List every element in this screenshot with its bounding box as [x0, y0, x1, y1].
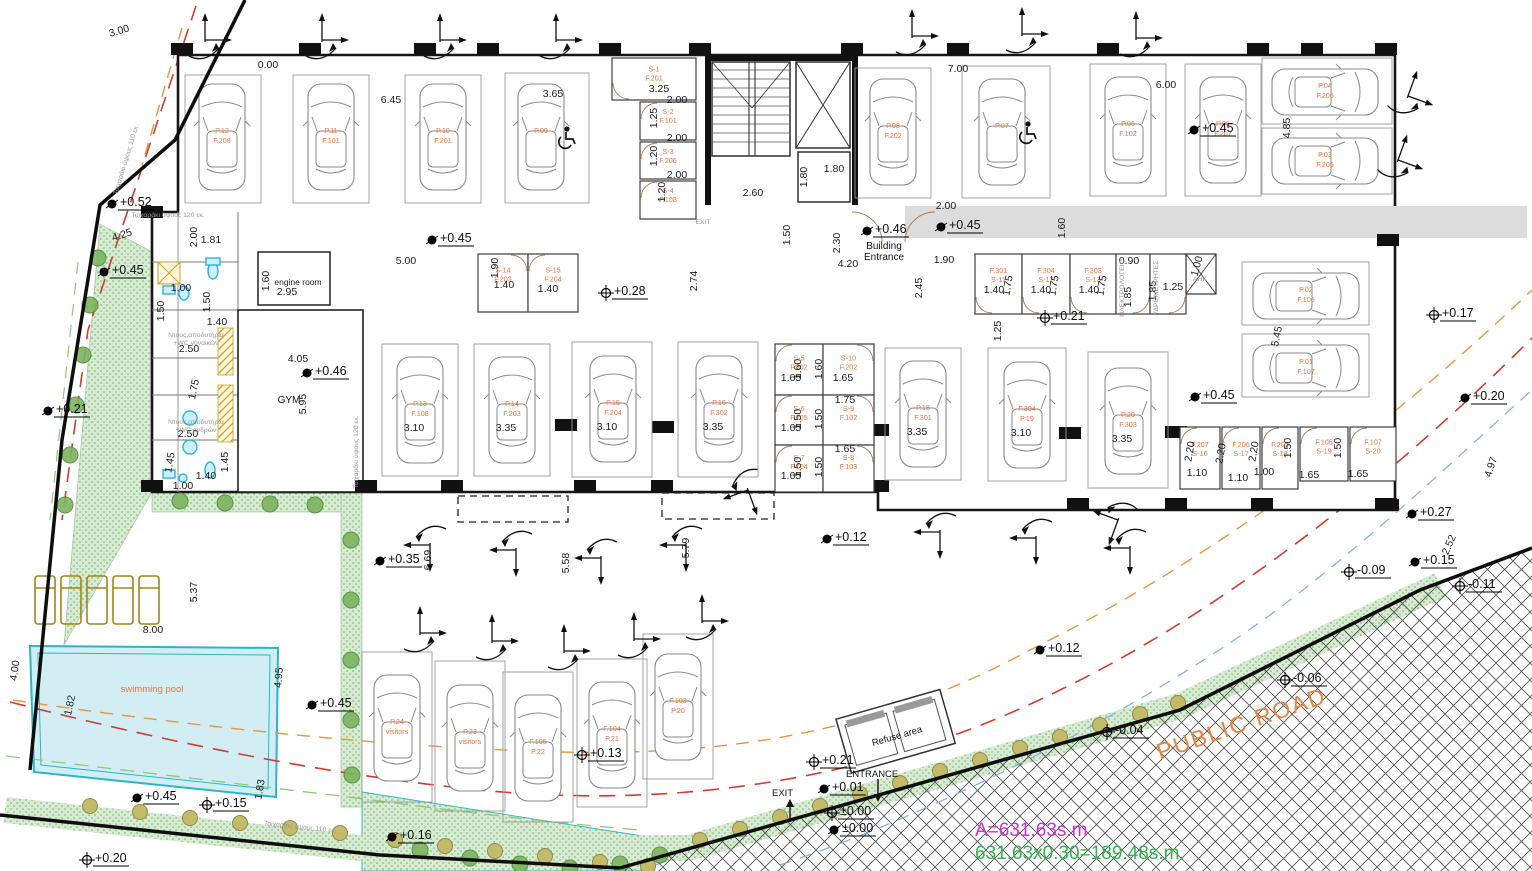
floor-plan-canvas: S-1F.201S-2F.101S-3F.206S-4F.108S-14F.20… — [0, 0, 1532, 871]
dimension-label: 6.45 — [381, 94, 402, 106]
storage-room: S-4F.108 — [640, 181, 696, 219]
elevation-marker: +0.15 — [1409, 553, 1457, 568]
bush-icon — [83, 799, 98, 814]
gym-label: GYM — [278, 395, 301, 406]
dimension-label: 0.00 — [258, 59, 279, 71]
direction-arrow-icon — [476, 614, 519, 660]
tree-icon — [307, 497, 323, 513]
direction-arrow-icon — [1103, 529, 1146, 575]
site-plan-drawing: S-1F.201S-2F.101S-3F.206S-4F.108S-14F.20… — [0, 0, 1532, 871]
parking-spot-id: P.12 — [215, 126, 229, 135]
parking-spot-id: P.06 — [1121, 119, 1135, 128]
wall-column — [651, 480, 673, 492]
elevation-value: +0.52 — [120, 195, 152, 209]
dimension-label: 1.81 — [201, 234, 222, 246]
dimension-label: 1.50 — [792, 409, 804, 430]
direction-arrow-icon — [1120, 11, 1163, 57]
tree-icon — [343, 592, 359, 608]
dimension-label: 2.00 — [667, 94, 688, 106]
parking-spot-flat: P.21 — [605, 734, 619, 743]
wall-column — [141, 480, 163, 492]
note-label: ΗΛΕΚΤΡΟΛΟΓΕΙΟ — [1119, 259, 1126, 317]
bush-icon — [133, 805, 148, 820]
wall-column — [599, 43, 621, 55]
dimension-label: 1.25 — [648, 108, 660, 129]
dimension-label: 6.69 — [422, 550, 434, 571]
dimension-label: 1.65 — [835, 443, 856, 455]
parking-spot-id: P.15 — [606, 398, 620, 407]
wall-column — [689, 43, 711, 55]
stall-width-dim: 3.10 — [1011, 427, 1032, 439]
setback-green-left — [50, 262, 78, 520]
tree-icon — [172, 493, 188, 509]
wall-column — [652, 421, 674, 433]
dimension-label: 1.90 — [934, 254, 955, 266]
room-id: S-3 — [662, 147, 673, 156]
dimension-label: 1.50 — [1282, 438, 1294, 459]
direction-arrow-icon — [548, 624, 591, 670]
dimension-label: 1.65 — [1348, 468, 1369, 480]
room-flat: F.201 — [645, 73, 663, 82]
elevation-value: +0.45 — [1202, 121, 1234, 135]
dimension-label: 6.00 — [1156, 79, 1177, 91]
dimension-label: 1.40 — [538, 283, 559, 295]
dimension-label: 2.00 — [667, 132, 688, 144]
elevation-value: +0.21 — [822, 753, 854, 767]
elevation-marker: +0.20 — [79, 851, 129, 868]
elevation-value: +0.21 — [56, 402, 88, 416]
parking-spot-flat: F.108 — [411, 409, 429, 418]
wall-column — [1375, 43, 1397, 55]
elevation-value: -0.11 — [1468, 577, 1496, 591]
dimension-label: 1.50 — [1332, 438, 1344, 459]
stall-width-dim: 3.10 — [404, 422, 425, 434]
elevation-marker: +0.27 — [1406, 505, 1454, 520]
dimension-label: 5.00 — [396, 255, 417, 267]
dimension-label: 7.00 — [948, 63, 969, 75]
parking-spot-flat: F.107 — [1297, 367, 1315, 376]
parking-spot-flat: F.302 — [710, 408, 728, 417]
elevation-value: +0.12 — [1048, 641, 1080, 655]
dimension-label: 1.50 — [813, 409, 825, 430]
elevation-marker: +0.21 — [806, 753, 856, 770]
wall-column — [414, 43, 436, 55]
parking-spot-flat: P.20 — [671, 706, 685, 715]
wall-column — [555, 419, 577, 431]
wall-column — [441, 480, 463, 492]
elevation-value: -0.09 — [1357, 563, 1386, 577]
bush-icon — [538, 849, 553, 864]
wall-column — [1165, 498, 1187, 510]
dimension-label: 2.45 — [913, 278, 925, 299]
parking-spot-flat: F.101 — [322, 136, 340, 145]
tree-icon — [57, 497, 73, 513]
wall-column — [1097, 43, 1119, 55]
elevation-value: +0.45 — [145, 789, 177, 803]
dimension-label: 1.40 — [494, 279, 515, 291]
direction-arrow-icon — [574, 539, 617, 585]
dimension-label: 2.95 — [277, 286, 298, 298]
parking-spot-id: P.18 — [916, 403, 930, 412]
dimension-label: 3.00 — [108, 22, 131, 39]
room-id: F.304 — [1037, 266, 1055, 275]
bush-icon — [233, 816, 248, 831]
dimension-label: 1.40 — [196, 470, 217, 482]
dimension-label: 1.50 — [792, 457, 804, 478]
dimension-label: 1.10 — [1228, 472, 1249, 484]
dimension-label: 1.50 — [813, 457, 825, 478]
elevation-marker: -0.09 — [1341, 563, 1391, 580]
room-flat: F.206 — [659, 156, 677, 165]
parking-spot-id: P.09 — [534, 126, 548, 135]
tree-icon — [62, 447, 78, 463]
wc-women-label-1: Ντους,αποδυτήρια — [168, 332, 224, 339]
dimension-label: 1.80 — [798, 167, 810, 188]
dimension-label: 4.95 — [272, 667, 286, 689]
elevation-marker: +0.12 — [821, 530, 869, 545]
room-flat: F.101 — [659, 116, 677, 125]
elevation-value: +0.17 — [1442, 306, 1474, 320]
elevation-marker: +0.12 — [1034, 641, 1082, 656]
stall-width-dim: 3.10 — [597, 421, 618, 433]
elevation-value: +0.28 — [614, 284, 646, 298]
parking-spot-flat: F.201 — [434, 136, 452, 145]
parking-stall: F.105P.22 — [503, 672, 573, 822]
parking-spot-flat: P.22 — [531, 747, 545, 756]
dimension-label: 1.90 — [489, 258, 501, 279]
hatched-duct-2 — [218, 385, 233, 442]
room-flat: F.102 — [840, 413, 858, 422]
tree-icon — [217, 495, 233, 511]
dimension-label: 4.05 — [288, 353, 309, 365]
room-id: F.301 — [990, 266, 1008, 275]
room-id: F.303 — [1084, 266, 1102, 275]
note-label: ΥΔΡΟΜΕΤΡΗΤΕΣ — [1153, 260, 1160, 315]
direction-arrow-icon — [404, 606, 447, 652]
parking-spot-id: P.14 — [505, 399, 519, 408]
tree-icon — [343, 712, 359, 728]
wall-column — [1067, 498, 1089, 510]
dimension-label: 1.10 — [1187, 467, 1208, 479]
direction-arrow-icon — [686, 594, 729, 640]
dimension-label: 1.75 — [835, 394, 856, 406]
parking-spot-id: F.104 — [603, 724, 621, 733]
wall-column — [947, 43, 969, 55]
dimension-label: 4.97 — [1482, 455, 1500, 478]
room-id: S-1 — [648, 64, 659, 73]
parking-spot-flat: F.205 — [1316, 160, 1334, 169]
refuse-area: Refuse area — [836, 689, 955, 773]
dimension-label: 3.65 — [543, 88, 564, 100]
parking-spot-id: P.01 — [1299, 357, 1313, 366]
parking-spot-id: F.304 — [1018, 404, 1036, 413]
elevation-marker: +0.17 — [1426, 306, 1476, 323]
direction-arrow-icon — [489, 531, 532, 577]
wall-column — [1377, 234, 1399, 246]
elevation-value: +0.35 — [388, 552, 420, 566]
parking-stall: P.24visitors — [362, 652, 432, 802]
dimension-label: 1.50 — [155, 301, 167, 322]
parking-spot-flat: P.19 — [1020, 414, 1034, 423]
parking-stall: P.23visitors — [435, 661, 505, 811]
dimension-label: 1.00 — [171, 282, 192, 294]
dimension-label: 1.25 — [992, 321, 1004, 342]
dimension-label: 1.45 — [219, 452, 231, 473]
dimension-label: 4.85 — [1281, 118, 1293, 139]
elevation-value: +0.45 — [1203, 388, 1235, 402]
swimming-pool-label: swimming pool — [121, 684, 184, 695]
note-label: Τοιχαράκι ύψους 120 εκ. — [352, 415, 360, 488]
tree-icon — [262, 496, 278, 512]
stall-width-dim: 3.35 — [496, 422, 517, 434]
elevation-marker: +0.35 — [374, 552, 422, 567]
tree-icon — [343, 652, 359, 668]
area-text-2: 631.63x0.30=189.48s.m. — [975, 843, 1185, 864]
exit-arrowhead-icon — [786, 799, 794, 807]
elevation-value: +0.45 — [949, 218, 981, 232]
wc-men-label-1: Ντους,αποδυτήρια — [168, 419, 224, 426]
elevation-value: ±0.00 — [842, 821, 873, 835]
dimension-label: 1.20 — [648, 146, 660, 167]
wc-women-label-2: +WC γυναικών — [173, 339, 219, 347]
dimension-label: 4.00 — [8, 659, 23, 681]
building-entrance-label-2: Entrance — [864, 252, 904, 263]
elevation-value: +0.12 — [835, 530, 867, 544]
parking-spot-flat: F.206 — [1316, 91, 1334, 100]
dimension-label: 5.79 — [680, 538, 692, 559]
exit-label: EXIT — [772, 788, 793, 799]
engine-room-label: engine room — [274, 277, 321, 287]
elevation-marker: +0.20 — [1459, 389, 1507, 404]
bush-icon — [488, 844, 503, 859]
direction-arrow-icon — [1009, 519, 1052, 565]
elevation-marker: +0.45 — [131, 789, 179, 804]
canopy-dashed-1 — [458, 496, 568, 522]
drive-aisle — [905, 206, 1527, 238]
dimension-label: 2.60 — [743, 187, 764, 199]
note-label: Τοιχαράκι ύψους 120 εκ. — [131, 211, 204, 219]
wall-column — [1377, 499, 1399, 511]
dimension-label: 1.60 — [813, 359, 825, 380]
parking-spot-id: P.08 — [886, 121, 900, 130]
room-flat: F.202 — [840, 362, 858, 371]
direction-arrow-icon — [913, 513, 956, 559]
direction-arrow-icon — [896, 9, 939, 55]
parking-spot-flat: visitors — [459, 737, 482, 746]
parking-spot-id: P.03 — [1318, 150, 1332, 159]
elevation-value: ±0.00 — [840, 804, 871, 818]
wc-men-label-2: +WC ανδρών — [176, 426, 217, 434]
elevation-marker: +0.45 — [306, 696, 354, 711]
room-id: S-10 — [841, 353, 856, 362]
dimension-label: 1.65 — [833, 372, 854, 384]
wall-column — [1301, 43, 1323, 55]
stall-width-dim: 3.35 — [907, 426, 928, 438]
note-label: ΑΗΚ — [1193, 276, 1207, 283]
dimension-label: 1.20 — [656, 182, 668, 203]
parking-spot-id: P.23 — [463, 727, 477, 736]
wall-column — [1059, 427, 1081, 439]
parking-spot-id: P.11 — [324, 126, 337, 135]
parking-spot-id: P.13 — [413, 399, 427, 408]
parking-spot-id: P.10 — [436, 126, 450, 135]
dimension-label: 8.00 — [143, 624, 164, 636]
dimension-label: 5.37 — [188, 582, 200, 603]
elevation-value: -0.04 — [1115, 723, 1144, 737]
parking-spot-id: P.24 — [390, 717, 404, 726]
dimension-label: 5.58 — [560, 553, 572, 574]
dimension-label: 2.74 — [688, 271, 700, 292]
wall-column — [299, 43, 321, 55]
parking-spot-flat: F.102 — [1119, 129, 1137, 138]
elevation-marker: +0.21 — [42, 402, 90, 417]
entrance-label: ENTRANCE — [846, 769, 898, 780]
wall-column — [1251, 498, 1273, 510]
room-id: S-15 — [545, 266, 560, 275]
tree-icon — [344, 767, 360, 783]
dimension-label: 1.00 — [1254, 466, 1275, 478]
storage-room: S-10F.202 — [823, 344, 874, 395]
parking-spot-id: P.20 — [1121, 410, 1135, 419]
elevation-value: +0.20 — [1473, 389, 1505, 403]
parking-spot-id: P.02 — [1299, 285, 1313, 294]
bush-icon — [183, 811, 198, 826]
dimension-label: 4.20 — [838, 258, 859, 270]
dimension-label: 2.00 — [936, 200, 957, 212]
elevation-value: +0.20 — [95, 851, 127, 865]
dimension-label: 1.50 — [201, 292, 213, 313]
parking-spot-id: F.105 — [529, 737, 547, 746]
room-id: F.106 — [1315, 437, 1333, 446]
elevation-marker: +0.15 — [199, 796, 249, 813]
dimension-label: 1.83 — [252, 778, 267, 800]
wall-column — [477, 43, 499, 55]
room-flat: S-19 — [1316, 446, 1331, 455]
parking-spot-flat: visitors — [386, 727, 409, 736]
parking-spot-flat: F.301 — [914, 413, 932, 422]
elevation-value: +0.16 — [400, 828, 432, 842]
dimension-label: 1.50 — [781, 225, 793, 246]
parking-spot-flat: F.202 — [884, 131, 902, 140]
dimension-label: 1.60 — [1056, 218, 1068, 239]
room-flat: F.103 — [840, 462, 858, 471]
elevation-value: +0.13 — [590, 746, 622, 760]
elevation-value: +0.15 — [215, 796, 247, 810]
dimension-label: 1.60 — [792, 359, 804, 380]
elevation-marker: +0.52 — [106, 195, 154, 210]
elevation-value: +0.21 — [1053, 309, 1085, 323]
elevation-value: +0.45 — [112, 263, 144, 277]
parking-spot-flat: F.208 — [213, 136, 231, 145]
parking-stall: F.103P.20 — [643, 634, 713, 779]
elevation-marker: +0.01 — [818, 780, 866, 795]
parking-spot-flat: F.204 — [604, 408, 622, 417]
building-entrance-label-1: Building — [866, 241, 902, 252]
elevation-value: +0.46 — [315, 364, 347, 378]
elevation-value: +0.15 — [1423, 553, 1455, 567]
parking-spot-flat: F.303 — [1119, 420, 1137, 429]
room-flat: S-20 — [1365, 446, 1380, 455]
wall-column — [841, 43, 863, 55]
dimension-label: 2.00 — [667, 169, 688, 181]
parking-spot-id: P.16 — [712, 398, 726, 407]
parking-spot-id: P.07 — [995, 121, 1009, 130]
parking-spot-flat: F.106 — [1297, 295, 1315, 304]
room-id: S-2 — [662, 107, 673, 116]
wall-column — [171, 43, 193, 55]
dimension-label: 1.60 — [260, 271, 272, 292]
elevation-value: +0.45 — [320, 696, 352, 710]
direction-arrow-icon — [1006, 7, 1049, 53]
room-id: F.107 — [1364, 437, 1382, 446]
direction-arrow-icon — [618, 612, 661, 658]
dimension-label: 1.00 — [173, 480, 194, 492]
room-id: F.206 — [1232, 440, 1250, 449]
area-text-1: A=631.63s.m — [975, 820, 1088, 841]
wall-column — [1247, 43, 1269, 55]
dimension-label: 2.00 — [188, 227, 200, 248]
stall-width-dim: 3.35 — [703, 421, 724, 433]
dimension-label: 2.30 — [831, 233, 843, 254]
stall-width-dim: 3.35 — [1112, 433, 1133, 445]
note-label: EXIT — [695, 219, 710, 226]
dimension-label: 1.65 — [1299, 469, 1320, 481]
elevation-value: +0.27 — [1420, 505, 1452, 519]
parking-stall: F.104P.21 — [577, 659, 647, 807]
parking-spot-id: F.103 — [669, 696, 687, 705]
wall-column — [574, 480, 596, 492]
dimension-label: 1.80 — [824, 163, 845, 175]
elevation-value: +0.01 — [832, 780, 864, 794]
dimension-label: 1.25 — [1163, 281, 1184, 293]
elevation-value: +0.45 — [440, 231, 472, 245]
elevation-value: +0.46 — [875, 222, 907, 236]
direction-arrow-icon — [540, 13, 583, 59]
tree-icon — [343, 532, 359, 548]
parking-spot-flat: F.203 — [503, 409, 521, 418]
dimension-label: 1.40 — [207, 316, 228, 328]
bush-icon — [438, 839, 453, 854]
parking-spot-id: P.04 — [1318, 81, 1332, 90]
